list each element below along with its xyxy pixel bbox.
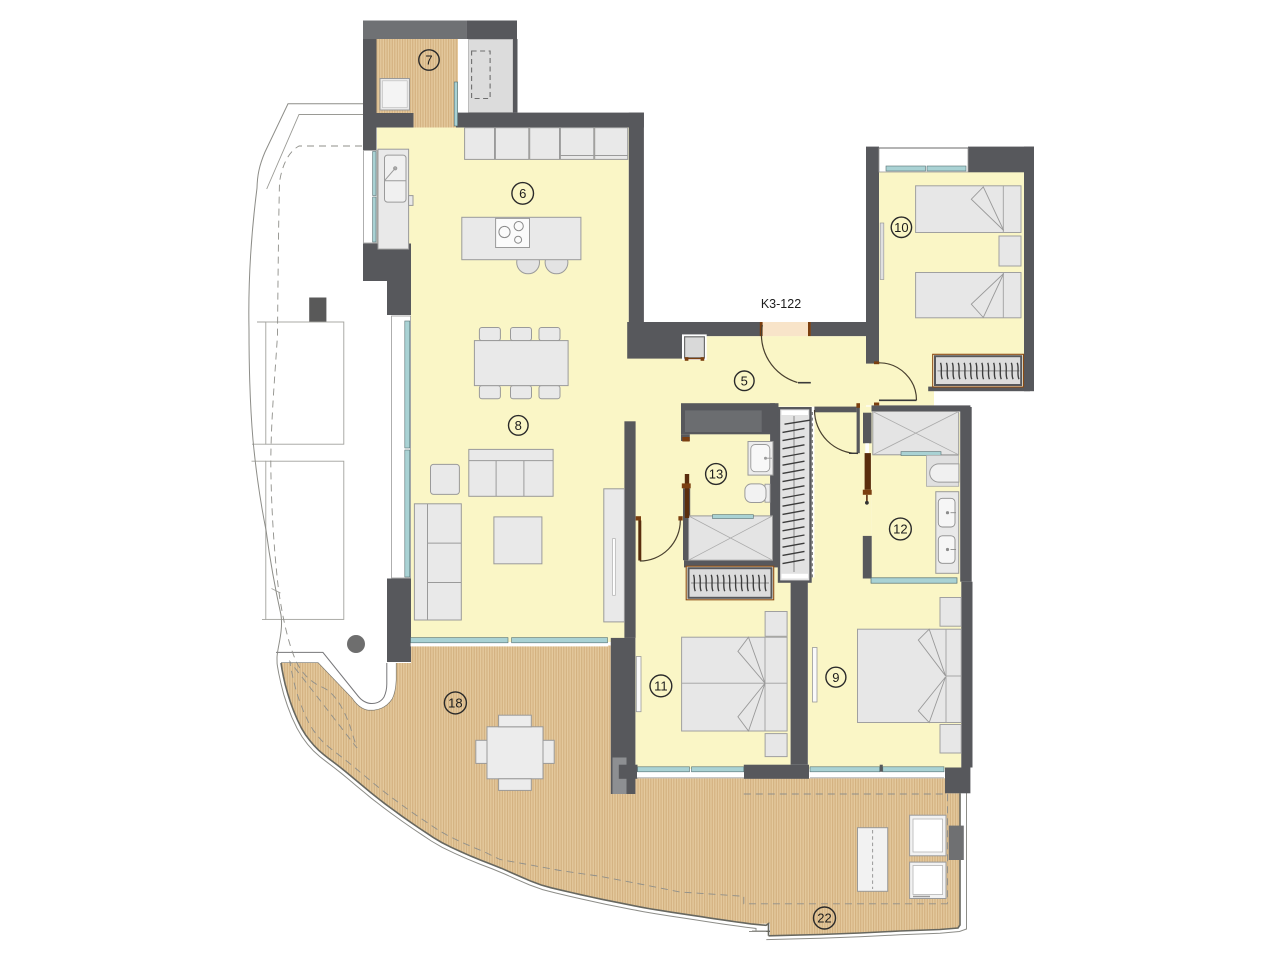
svg-text:9: 9 <box>832 670 839 685</box>
svg-text:6: 6 <box>519 186 526 201</box>
svg-text:10: 10 <box>894 220 908 235</box>
svg-text:7: 7 <box>425 53 432 68</box>
svg-text:5: 5 <box>741 373 748 388</box>
svg-text:8: 8 <box>515 418 522 433</box>
svg-text:18: 18 <box>448 696 462 711</box>
svg-text:22: 22 <box>817 911 831 926</box>
svg-text:12: 12 <box>893 522 907 537</box>
svg-text:13: 13 <box>709 467 723 482</box>
svg-text:K3-122: K3-122 <box>761 297 801 311</box>
svg-text:11: 11 <box>654 679 668 694</box>
